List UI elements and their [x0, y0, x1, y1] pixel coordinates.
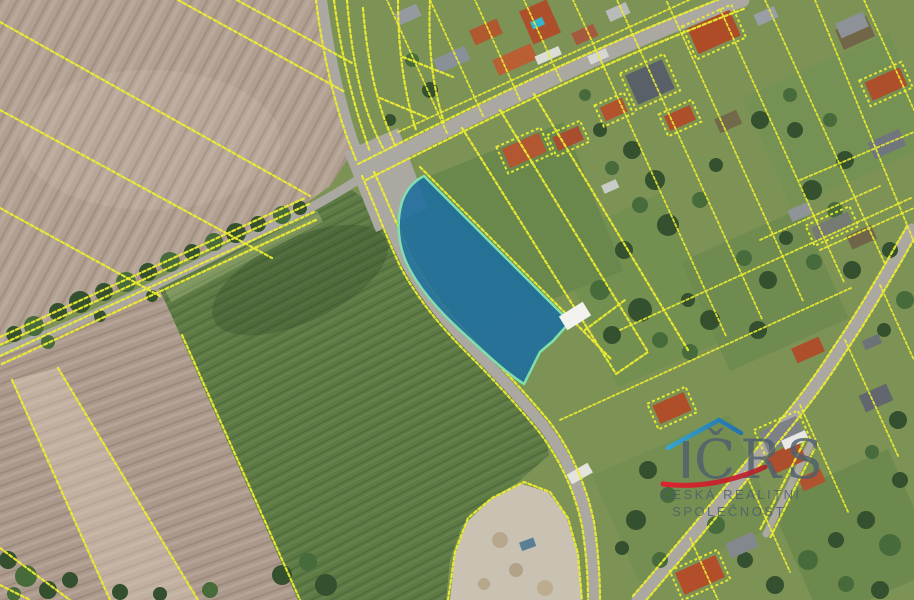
logo-bar: [683, 441, 689, 478]
aerial-map-viewport[interactable]: ČRS ČESKÁ REALITNÍ SPOLEČNOST: [0, 0, 914, 600]
aerial-photo: ČRS ČESKÁ REALITNÍ SPOLEČNOST: [0, 0, 914, 600]
watermark-line1: ČESKÁ REALITNÍ: [660, 487, 801, 502]
watermark-line2: SPOLEČNOST: [672, 504, 786, 519]
